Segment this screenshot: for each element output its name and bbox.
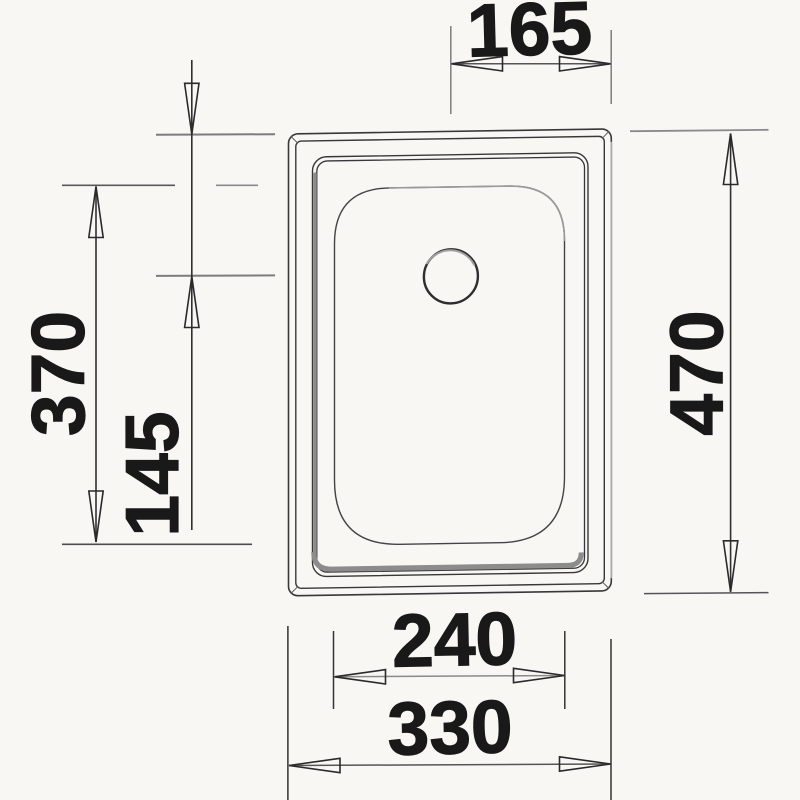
svg-text:240: 240	[391, 596, 518, 683]
svg-text:370: 370	[16, 311, 100, 436]
svg-text:470: 470	[655, 310, 739, 435]
svg-text:330: 330	[387, 684, 514, 771]
svg-text:145: 145	[110, 411, 194, 536]
svg-text:165: 165	[466, 0, 593, 73]
